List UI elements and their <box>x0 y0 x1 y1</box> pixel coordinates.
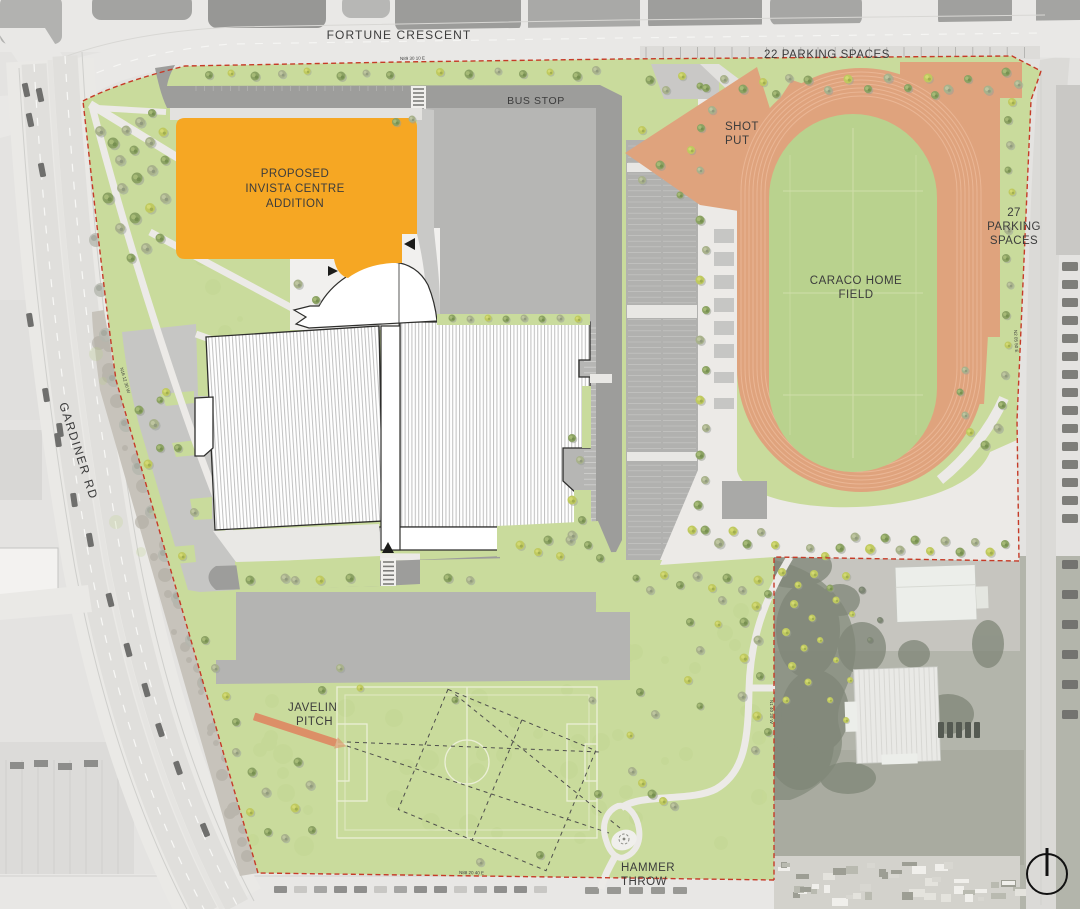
svg-text:ADDITION: ADDITION <box>266 198 324 210</box>
svg-text:22 PARKING SPACES: 22 PARKING SPACES <box>764 49 890 61</box>
svg-text:CARACO HOME: CARACO HOME <box>810 275 902 287</box>
svg-text:FORTUNE CRESCENT: FORTUNE CRESCENT <box>327 28 472 42</box>
svg-text:PROPOSED: PROPOSED <box>261 168 329 180</box>
svg-text:FIELD: FIELD <box>838 289 873 301</box>
svg-text:PITCH: PITCH <box>296 716 333 728</box>
svg-text:SHOT: SHOT <box>725 121 759 133</box>
svg-text:PUT: PUT <box>725 135 750 147</box>
svg-text:SPACES: SPACES <box>990 235 1038 247</box>
svg-text:27: 27 <box>1007 207 1021 219</box>
svg-text:INVISTA CENTRE: INVISTA CENTRE <box>245 183 344 195</box>
svg-text:HAMMER: HAMMER <box>621 862 675 874</box>
svg-text:BUS STOP: BUS STOP <box>507 95 565 107</box>
svg-text:N88 20 40 E: N88 20 40 E <box>459 870 484 875</box>
svg-text:JAVELIN: JAVELIN <box>288 702 337 714</box>
svg-text:PARKING: PARKING <box>987 221 1041 233</box>
svg-text:THROW: THROW <box>621 876 667 888</box>
svg-text:N1 40 20 W: N1 40 20 W <box>769 700 774 725</box>
svg-text:N89 30 10 E: N89 30 10 E <box>400 56 425 61</box>
